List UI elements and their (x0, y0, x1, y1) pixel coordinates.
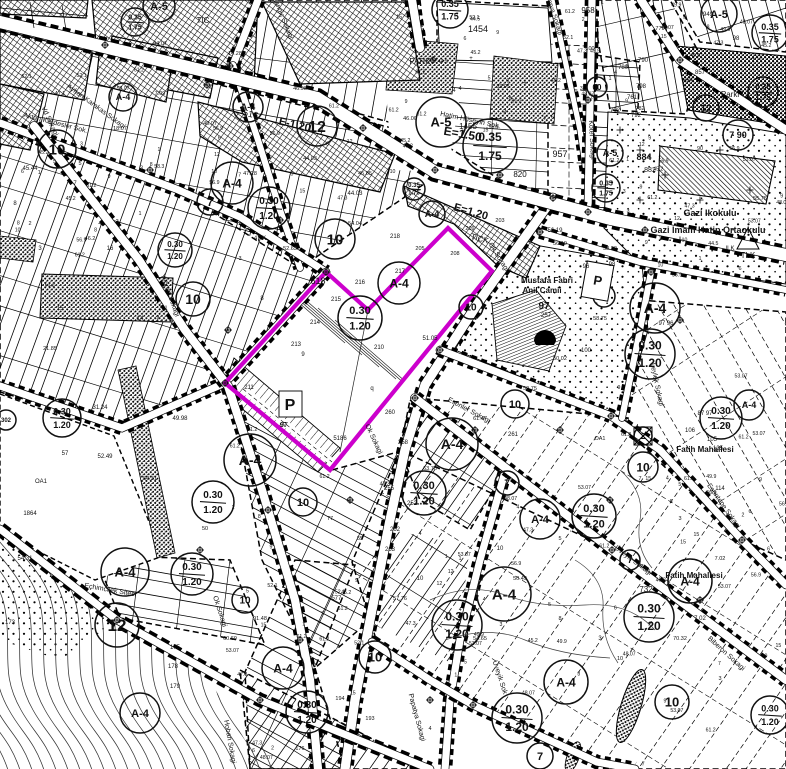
svg-text:61.2: 61.2 (599, 543, 609, 549)
svg-text:56.9: 56.9 (779, 501, 786, 507)
svg-text:54.31: 54.31 (143, 476, 157, 482)
svg-text:61.2: 61.2 (319, 636, 329, 642)
svg-text:15: 15 (57, 306, 64, 312)
svg-text:52.1: 52.1 (21, 74, 31, 80)
svg-text:61.2: 61.2 (415, 69, 425, 75)
svg-text:56.9: 56.9 (672, 273, 682, 279)
svg-text:1: 1 (698, 256, 701, 262)
svg-text:10: 10 (368, 650, 382, 665)
svg-text:0.30: 0.30 (349, 305, 370, 317)
svg-text:1864: 1864 (23, 511, 37, 517)
svg-text:A-4: A-4 (389, 276, 409, 290)
svg-text:6: 6 (748, 509, 751, 515)
svg-text:15: 15 (661, 34, 667, 40)
svg-text:0.35: 0.35 (408, 183, 420, 189)
svg-text:9: 9 (269, 544, 272, 550)
svg-text:0.30: 0.30 (259, 196, 279, 207)
svg-text:15: 15 (350, 690, 356, 696)
svg-text:49.9: 49.9 (706, 474, 716, 480)
svg-text:TIC: TIC (197, 16, 210, 25)
svg-text:100: 100 (581, 348, 592, 354)
svg-text:9: 9 (108, 174, 111, 180)
svg-text:211: 211 (244, 385, 254, 391)
svg-text:6: 6 (551, 114, 554, 120)
svg-text:45.44: 45.44 (22, 166, 38, 172)
svg-text:53.07: 53.07 (117, 86, 130, 92)
svg-text:00: 00 (593, 83, 602, 92)
svg-text:6: 6 (614, 605, 617, 611)
svg-text:63.78: 63.78 (423, 466, 437, 472)
svg-text:857: 857 (695, 70, 706, 76)
svg-text:10: 10 (239, 596, 251, 607)
svg-text:45.2: 45.2 (528, 638, 538, 644)
svg-text:45.2: 45.2 (403, 143, 413, 149)
svg-text:56.9: 56.9 (209, 180, 219, 186)
svg-text:56.9: 56.9 (489, 124, 499, 130)
svg-text:5: 5 (53, 159, 56, 165)
svg-text:792: 792 (631, 113, 642, 119)
svg-text:193: 193 (365, 716, 374, 722)
svg-text:10: 10 (49, 141, 66, 158)
svg-text:7.02: 7.02 (694, 616, 706, 622)
svg-text:261: 261 (508, 432, 519, 438)
svg-text:52.1: 52.1 (354, 640, 364, 646)
svg-text:7: 7 (537, 751, 543, 763)
svg-text:179: 179 (170, 684, 181, 690)
svg-text:782: 782 (635, 106, 644, 112)
svg-text:10: 10 (509, 399, 521, 411)
svg-text:6: 6 (21, 169, 24, 175)
svg-text:61.2: 61.2 (739, 434, 749, 440)
svg-text:96: 96 (583, 264, 590, 270)
svg-text:61.2: 61.2 (86, 183, 96, 189)
svg-text:9: 9 (625, 98, 628, 104)
svg-text:60.69: 60.69 (223, 636, 237, 642)
svg-text:1.75: 1.75 (478, 149, 502, 163)
svg-text:53.07: 53.07 (578, 485, 591, 491)
svg-text:7 90: 7 90 (729, 130, 747, 140)
svg-text:TLK: TLK (741, 251, 756, 260)
svg-text:3: 3 (627, 208, 630, 214)
svg-text:45.2: 45.2 (470, 50, 480, 56)
svg-text:3: 3 (313, 663, 316, 669)
svg-text:56.9: 56.9 (658, 159, 668, 165)
svg-text:208: 208 (450, 251, 459, 257)
svg-text:8: 8 (707, 24, 710, 30)
svg-text:1: 1 (158, 147, 161, 153)
svg-text:1: 1 (608, 76, 611, 82)
svg-text:98: 98 (609, 262, 616, 268)
svg-text:61.2: 61.2 (512, 99, 522, 105)
svg-text:7: 7 (321, 611, 324, 617)
svg-text:0.30: 0.30 (637, 602, 661, 616)
svg-text:46.98: 46.98 (293, 86, 307, 92)
svg-text:15: 15 (694, 532, 700, 538)
svg-text:0.35: 0.35 (441, 0, 459, 9)
svg-text:215: 215 (331, 297, 342, 303)
svg-text:10: 10 (185, 291, 201, 307)
svg-text:59.75: 59.75 (523, 386, 537, 392)
svg-text:56.9: 56.9 (270, 131, 280, 137)
svg-text:47.3: 47.3 (685, 203, 695, 209)
svg-text:5: 5 (599, 0, 602, 2)
svg-text:53.07: 53.07 (748, 219, 761, 225)
svg-text:61.2: 61.2 (134, 68, 144, 74)
svg-text:2: 2 (271, 745, 274, 751)
svg-text:10: 10 (636, 460, 650, 474)
svg-text:52.1: 52.1 (267, 583, 277, 589)
svg-text:61.2: 61.2 (329, 103, 339, 109)
svg-text:5186: 5186 (333, 436, 347, 442)
svg-text:1.20: 1.20 (297, 715, 317, 726)
svg-text:A-4: A-4 (556, 675, 576, 689)
svg-text:45.2: 45.2 (761, 43, 771, 49)
svg-text:1: 1 (302, 621, 305, 627)
svg-text:OA1: OA1 (594, 436, 605, 442)
svg-text:7: 7 (238, 173, 241, 179)
svg-text:217: 217 (395, 269, 406, 275)
svg-text:44.5: 44.5 (438, 59, 448, 65)
svg-text:4: 4 (636, 424, 639, 430)
svg-text:61.2: 61.2 (389, 108, 399, 114)
svg-text:10: 10 (682, 237, 688, 243)
svg-text:14: 14 (137, 316, 144, 322)
svg-text:56.9: 56.9 (751, 573, 761, 579)
svg-text:3: 3 (678, 516, 681, 522)
svg-text:3: 3 (140, 166, 143, 172)
svg-text:53.07: 53.07 (458, 552, 471, 558)
svg-text:1.20: 1.20 (505, 720, 529, 734)
svg-text:+: + (523, 81, 527, 87)
svg-text:47.28: 47.28 (243, 171, 257, 177)
svg-text:1.75: 1.75 (408, 191, 420, 197)
svg-text:7: 7 (207, 197, 213, 209)
svg-text:12: 12 (448, 569, 454, 575)
svg-text:4: 4 (483, 597, 486, 603)
svg-text:9: 9 (618, 385, 621, 391)
svg-text:957: 957 (552, 149, 567, 159)
svg-text:91.48: 91.48 (253, 616, 267, 622)
svg-text:1.20: 1.20 (761, 717, 779, 727)
svg-text:2: 2 (28, 221, 31, 227)
svg-text:3: 3 (718, 676, 721, 682)
svg-text:4: 4 (188, 241, 191, 247)
svg-text:0.30: 0.30 (445, 610, 469, 624)
svg-text:OA1: OA1 (35, 479, 48, 485)
svg-text:56.9: 56.9 (76, 237, 86, 243)
svg-text:58.80: 58.80 (603, 246, 617, 252)
svg-text:9: 9 (355, 578, 358, 584)
svg-text:A-5: A-5 (150, 1, 168, 13)
svg-text:61.2: 61.2 (621, 432, 631, 438)
svg-text:7: 7 (642, 761, 645, 767)
svg-text:0.35: 0.35 (599, 180, 613, 187)
svg-text:0.30: 0.30 (167, 240, 183, 249)
svg-text:218: 218 (390, 234, 401, 240)
svg-text:6: 6 (265, 175, 268, 181)
svg-text:4: 4 (614, 70, 617, 76)
svg-text:58.75: 58.75 (593, 316, 607, 322)
svg-text:820: 820 (513, 170, 527, 179)
svg-text:106: 106 (685, 428, 696, 434)
svg-text:7.09: 7.09 (155, 91, 166, 97)
svg-text:7: 7 (718, 661, 721, 667)
svg-text:52.1: 52.1 (563, 35, 573, 41)
svg-text:15: 15 (776, 643, 782, 649)
svg-text:15: 15 (396, 15, 402, 21)
svg-text:48.07: 48.07 (522, 690, 535, 696)
svg-text:47.3: 47.3 (406, 621, 416, 627)
svg-text:P: P (285, 397, 296, 414)
svg-text:10: 10 (327, 231, 344, 248)
svg-text:4: 4 (516, 504, 519, 510)
svg-text:0.30: 0.30 (583, 503, 604, 515)
svg-text:9: 9 (405, 99, 408, 105)
svg-text:1.75: 1.75 (599, 190, 613, 197)
svg-text:53.07: 53.07 (469, 641, 482, 647)
svg-text:178: 178 (168, 664, 179, 670)
svg-text:10: 10 (211, 169, 217, 175)
svg-text:5: 5 (332, 596, 335, 602)
svg-text:45.2: 45.2 (653, 166, 663, 172)
svg-text:5: 5 (246, 588, 249, 594)
svg-text:684: 684 (683, 78, 694, 84)
svg-text:5: 5 (291, 172, 294, 178)
svg-text:1.20: 1.20 (203, 505, 223, 516)
svg-text:7.02: 7.02 (715, 556, 726, 562)
svg-text:252: 252 (407, 501, 418, 507)
svg-text:1.20: 1.20 (711, 421, 731, 432)
svg-text:61.2: 61.2 (75, 252, 85, 258)
svg-text:45.05: 45.05 (358, 171, 372, 177)
svg-text:10: 10 (297, 497, 309, 509)
svg-text:1.20: 1.20 (637, 619, 661, 633)
svg-text:A-4: A-4 (531, 514, 550, 526)
svg-text:4: 4 (459, 607, 462, 613)
svg-text:Gazi Ikokulu: Gazi Ikokulu (683, 208, 736, 218)
svg-text:16: 16 (107, 246, 114, 252)
svg-text:PARK: PARK (409, 57, 431, 66)
svg-text:5: 5 (464, 659, 467, 665)
svg-text:12: 12 (700, 104, 712, 115)
svg-text:257: 257 (541, 313, 552, 319)
svg-text:A-4: A-4 (131, 708, 150, 720)
svg-text:175: 175 (170, 645, 181, 651)
svg-text:884: 884 (636, 152, 651, 162)
svg-text:A-4: A-4 (239, 452, 262, 468)
svg-text:55: 55 (357, 536, 363, 542)
svg-text:A-4: A-4 (441, 436, 464, 452)
svg-text:12: 12 (639, 142, 645, 148)
svg-text:47.3: 47.3 (713, 40, 723, 46)
svg-text:ILK: ILK (725, 246, 734, 252)
svg-text:6: 6 (463, 36, 466, 42)
svg-text:Fatih Mahallesi: Fatih Mahallesi (676, 445, 733, 454)
svg-text:56.9: 56.9 (729, 146, 739, 152)
svg-text:7: 7 (543, 116, 546, 122)
svg-text:77: 77 (327, 516, 333, 522)
svg-text:48.07: 48.07 (740, 20, 753, 26)
svg-text:10: 10 (417, 576, 424, 582)
svg-text:61.2: 61.2 (45, 283, 55, 289)
svg-text:0.30: 0.30 (53, 407, 71, 417)
svg-text:51.05: 51.05 (422, 336, 438, 342)
svg-text:203: 203 (495, 218, 504, 224)
svg-text:61.2: 61.2 (684, 476, 694, 482)
svg-text:0.30: 0.30 (297, 700, 317, 711)
svg-text:15: 15 (680, 540, 686, 546)
svg-text:48.07: 48.07 (623, 652, 636, 658)
svg-text:618: 618 (310, 276, 325, 286)
svg-text:90: 90 (697, 146, 703, 152)
svg-text:4: 4 (666, 475, 669, 481)
svg-text:49.9: 49.9 (590, 48, 600, 54)
svg-text:2: 2 (742, 513, 745, 519)
svg-text:3: 3 (80, 141, 83, 147)
svg-text:1: 1 (660, 354, 663, 360)
svg-text:49.9: 49.9 (557, 639, 567, 645)
svg-text:0.30: 0.30 (413, 480, 434, 492)
svg-text:46.00: 46.00 (403, 116, 417, 122)
svg-text:97 96: 97 96 (658, 321, 674, 327)
svg-text:0.30: 0.30 (505, 703, 529, 717)
svg-text:44.03: 44.03 (347, 191, 363, 197)
svg-text:0.35: 0.35 (755, 82, 771, 91)
svg-text:209: 209 (465, 226, 474, 232)
svg-text:0.30: 0.30 (638, 339, 662, 353)
svg-text:9: 9 (648, 135, 651, 141)
svg-text:1: 1 (626, 157, 629, 163)
svg-text:53.07: 53.07 (226, 648, 239, 654)
svg-text:47.3: 47.3 (252, 741, 262, 747)
svg-text:7: 7 (638, 476, 641, 482)
svg-text:949: 949 (703, 12, 714, 18)
svg-text:0.35: 0.35 (761, 22, 779, 32)
svg-text:176: 176 (295, 746, 304, 752)
svg-text:216: 216 (355, 280, 366, 286)
svg-text:761: 761 (627, 95, 638, 101)
svg-text:4: 4 (418, 531, 421, 537)
svg-text:Anil Camii: Anil Camii (522, 286, 561, 295)
svg-text:58.3: 58.3 (154, 164, 164, 170)
svg-text:97: 97 (280, 423, 287, 429)
svg-text:1.75: 1.75 (128, 24, 142, 31)
svg-text:70.32: 70.32 (673, 636, 687, 642)
svg-text:6: 6 (252, 748, 255, 754)
svg-text:1: 1 (445, 554, 448, 560)
svg-text:q: q (370, 386, 373, 392)
svg-text:1.20: 1.20 (53, 420, 71, 430)
svg-text:47.3: 47.3 (237, 672, 247, 678)
svg-text:6: 6 (670, 499, 673, 505)
svg-text:A-4: A-4 (115, 565, 137, 580)
svg-text:3: 3 (499, 622, 502, 628)
svg-text:A-4: A-4 (742, 400, 757, 410)
svg-text:10: 10 (15, 228, 21, 234)
svg-text:56.19: 56.19 (547, 228, 563, 234)
svg-text:15: 15 (300, 188, 306, 194)
svg-text:2: 2 (605, 208, 608, 214)
svg-text:31.24: 31.24 (92, 405, 108, 411)
svg-text:6: 6 (218, 135, 221, 141)
svg-text:1: 1 (454, 672, 457, 678)
svg-text:97: 97 (538, 301, 550, 312)
svg-text:2: 2 (232, 505, 235, 511)
svg-text:7: 7 (504, 479, 510, 490)
svg-text:47.3: 47.3 (523, 528, 533, 534)
svg-text:9: 9 (496, 30, 499, 36)
svg-text:54.04: 54.04 (348, 221, 362, 227)
svg-text:A-4: A-4 (425, 209, 440, 219)
svg-text:48.07: 48.07 (260, 755, 273, 761)
svg-text:45.2: 45.2 (656, 578, 666, 584)
svg-text:9: 9 (759, 477, 762, 483)
svg-text:61.2: 61.2 (247, 427, 257, 433)
svg-text:61.2: 61.2 (338, 606, 348, 612)
svg-text:205: 205 (415, 246, 424, 252)
svg-text:1.75: 1.75 (755, 93, 771, 102)
svg-text:5: 5 (488, 75, 491, 81)
svg-text:7: 7 (455, 12, 458, 18)
svg-text:77: 77 (335, 596, 342, 602)
svg-text:A-4: A-4 (273, 661, 293, 675)
svg-text:958: 958 (581, 6, 595, 15)
svg-text:798: 798 (636, 84, 647, 90)
svg-text:61.2: 61.2 (416, 111, 426, 117)
svg-text:0.30: 0.30 (203, 490, 223, 501)
svg-text:3: 3 (580, 86, 583, 92)
svg-text:5: 5 (78, 161, 81, 167)
svg-text:10: 10 (762, 653, 768, 659)
svg-text:56.19: 56.19 (553, 241, 567, 247)
svg-text:9: 9 (645, 240, 648, 246)
svg-text:A-4: A-4 (644, 300, 667, 316)
svg-text:98: 98 (733, 36, 740, 42)
svg-text:44.07: 44.07 (153, 41, 167, 47)
svg-text:53.07: 53.07 (752, 431, 765, 437)
svg-text:Fatih Mahallesi: Fatih Mahallesi (665, 571, 722, 580)
svg-text:50.49: 50.49 (513, 576, 527, 582)
svg-text:302: 302 (1, 418, 12, 424)
svg-text:56.9: 56.9 (706, 490, 716, 496)
svg-text:0.30: 0.30 (761, 704, 779, 714)
svg-text:790: 790 (638, 58, 649, 64)
svg-text:47.3: 47.3 (577, 49, 587, 55)
svg-text:15: 15 (261, 623, 267, 629)
svg-text:61.2: 61.2 (320, 474, 330, 480)
svg-text:12: 12 (214, 152, 220, 158)
svg-text:47.K: 47.K (254, 236, 266, 242)
svg-text:3: 3 (577, 671, 580, 677)
svg-text:12: 12 (674, 216, 680, 222)
svg-text:A-4: A-4 (116, 92, 131, 102)
svg-text:18.07: 18.07 (113, 126, 127, 132)
svg-text:53.07: 53.07 (718, 584, 731, 590)
svg-text:52.49: 52.49 (97, 454, 113, 460)
svg-text:260: 260 (385, 410, 396, 416)
svg-text:14.28: 14.28 (228, 51, 242, 57)
svg-text:49.9: 49.9 (474, 632, 484, 638)
svg-text:8: 8 (258, 514, 261, 520)
svg-text:Mustafa Fahri: Mustafa Fahri (521, 276, 573, 285)
svg-text:61.2: 61.2 (230, 443, 240, 449)
svg-text:44.5: 44.5 (470, 16, 480, 22)
svg-text:1454: 1454 (468, 24, 488, 34)
svg-text:87 97: 87 97 (697, 411, 713, 417)
svg-text:9: 9 (780, 193, 783, 199)
svg-text:3: 3 (623, 189, 626, 195)
svg-text:57: 57 (62, 451, 69, 457)
